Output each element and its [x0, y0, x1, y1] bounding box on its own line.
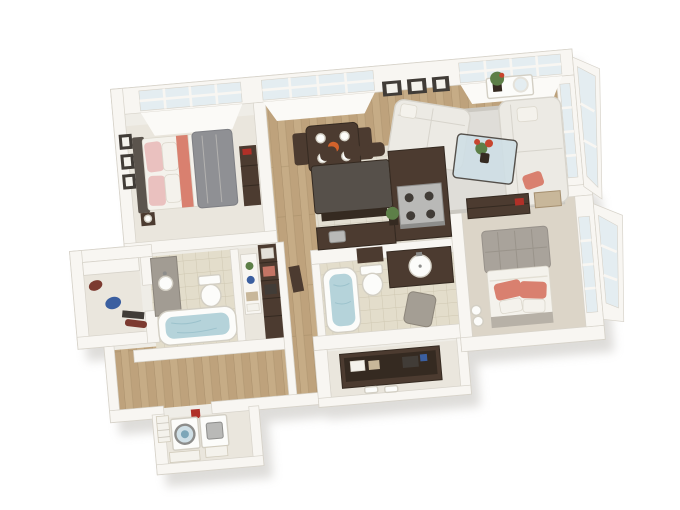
bathtub-2: [322, 267, 361, 334]
counter-right: [388, 147, 452, 242]
hamper: [403, 291, 437, 328]
bedroom1-window: [139, 82, 245, 137]
vanity-1: [150, 256, 181, 316]
coffee-table: [453, 134, 518, 185]
kitchen-island: [311, 159, 393, 214]
floor-plan-image: [0, 0, 680, 510]
kitchen-sink: [329, 231, 346, 243]
wall-cabinet: [356, 246, 383, 263]
wood-chest: [534, 191, 561, 208]
bed-2: [481, 226, 555, 328]
room-kitchen: [309, 137, 451, 250]
apartment-plan: [56, 46, 643, 494]
washer: [171, 417, 201, 450]
dryer: [199, 415, 229, 448]
vanity-2: [387, 246, 454, 287]
floor-plan-svg: [0, 0, 680, 510]
bed-1: [132, 129, 238, 213]
bathtub-1: [157, 305, 238, 346]
round-mirror: [513, 77, 528, 92]
nightstand-lamp: [140, 212, 155, 226]
